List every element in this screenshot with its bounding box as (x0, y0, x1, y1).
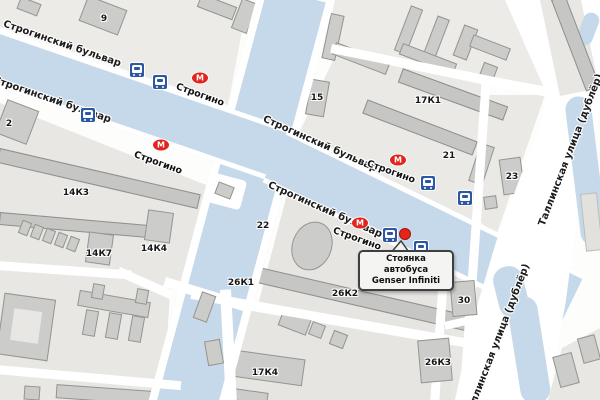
bus-glyph (385, 230, 395, 238)
metro-icon-1[interactable]: М (153, 140, 169, 151)
metro-icon-2[interactable]: М (390, 155, 406, 166)
bus-glyph (132, 65, 142, 73)
map-callout[interactable]: Стоянка автобуса Genser Infiniti (358, 250, 454, 291)
bus-glyph (155, 77, 165, 85)
map-canvas[interactable]: Строгинский бульварСтрогинский бульварСт… (0, 0, 600, 400)
building-14k4 (144, 209, 174, 243)
building-26k3 (417, 338, 453, 384)
bus-stop-icon-1[interactable] (153, 75, 167, 89)
bus-glyph (460, 193, 470, 201)
metro-icon-0[interactable]: М (192, 73, 208, 84)
callout-line2: Genser Infiniti (363, 276, 449, 287)
callout-line1: Стоянка автобуса (363, 254, 449, 276)
bus-glyph (423, 178, 433, 186)
bus-stop-icon-3[interactable] (421, 176, 435, 190)
bus-glyph (83, 110, 93, 118)
bus-stop-icon-0[interactable] (130, 63, 144, 77)
bus-stop-icon-4[interactable] (458, 191, 472, 205)
metro-icon-3[interactable]: М (352, 218, 368, 229)
building-14k7 (85, 231, 114, 265)
bus-stop-icon-2[interactable] (81, 108, 95, 122)
